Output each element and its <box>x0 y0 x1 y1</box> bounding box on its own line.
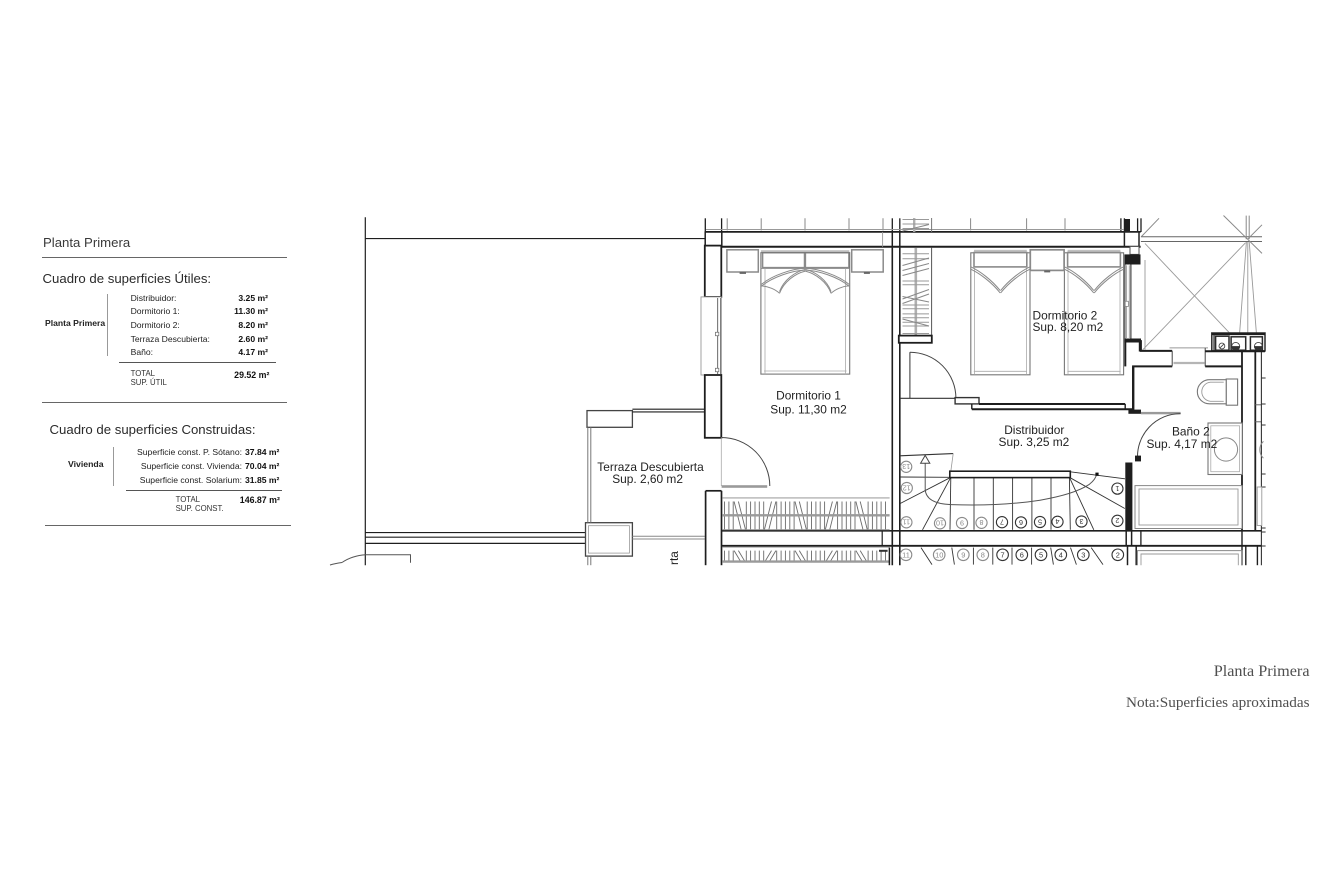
svg-text:3: 3 <box>1080 517 1084 526</box>
svg-text:1: 1 <box>1115 484 1119 493</box>
svg-text:Sup. 3,25 m2: Sup. 3,25 m2 <box>999 435 1070 449</box>
svg-text:10: 10 <box>935 551 943 560</box>
svg-text:11: 11 <box>903 518 910 527</box>
svg-text:13: 13 <box>902 462 910 471</box>
svg-text:7: 7 <box>1000 518 1004 527</box>
svg-text:9: 9 <box>961 551 965 560</box>
svg-text:9: 9 <box>960 518 964 527</box>
svg-text:Baño 2: Baño 2 <box>1172 424 1210 438</box>
svg-text:8: 8 <box>981 551 985 560</box>
svg-text:7: 7 <box>1001 551 1005 560</box>
svg-text:Sup. 8,20 m2: Sup. 8,20 m2 <box>1033 320 1104 334</box>
svg-text:8: 8 <box>980 518 984 527</box>
svg-text:Sup. 11,30 m2: Sup. 11,30 m2 <box>770 403 847 417</box>
svg-text:3: 3 <box>1081 551 1085 560</box>
svg-text:6: 6 <box>1019 518 1023 527</box>
svg-text:4: 4 <box>1056 517 1060 526</box>
svg-text:10: 10 <box>936 519 944 528</box>
svg-text:11: 11 <box>902 551 910 560</box>
svg-text:Dormitorio 1: Dormitorio 1 <box>776 388 841 402</box>
svg-text:5: 5 <box>1039 551 1043 560</box>
svg-text:Sup. 4,17 m2: Sup. 4,17 m2 <box>1147 437 1218 451</box>
svg-text:rta: rta <box>667 551 681 565</box>
svg-text:6: 6 <box>1020 551 1024 560</box>
svg-text:5: 5 <box>1038 517 1042 526</box>
svg-text:2: 2 <box>1116 551 1120 560</box>
svg-text:2: 2 <box>1115 516 1119 525</box>
svg-text:12: 12 <box>903 483 911 492</box>
svg-text:Sup. 2,60 m2: Sup. 2,60 m2 <box>612 472 683 486</box>
svg-text:4: 4 <box>1059 551 1063 560</box>
